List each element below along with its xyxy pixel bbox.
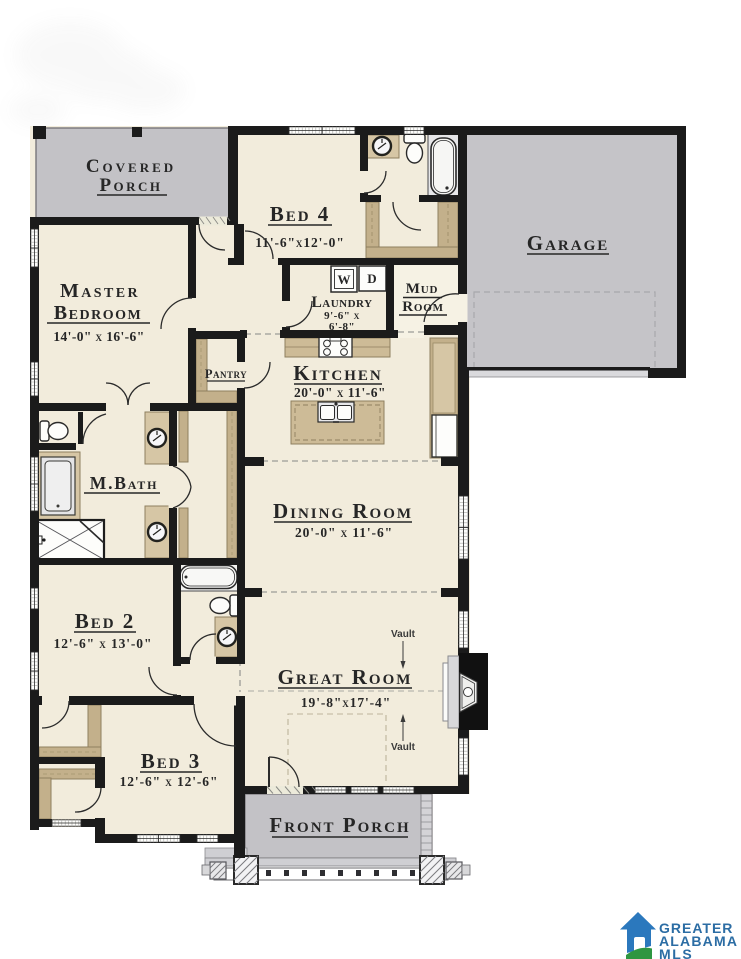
- svg-text:6'-8": 6'-8": [329, 321, 355, 333]
- svg-text:Kitchen: Kitchen: [293, 361, 383, 385]
- svg-text:14'-0" x 16'-6": 14'-0" x 16'-6": [53, 329, 144, 344]
- svg-text:Great Room: Great Room: [278, 665, 413, 689]
- svg-text:M.Bath: M.Bath: [90, 473, 158, 493]
- svg-text:12'-6" x 12'-6": 12'-6" x 12'-6": [120, 774, 219, 789]
- svg-text:Porch: Porch: [99, 175, 162, 196]
- svg-text:19'-8"x17'-4": 19'-8"x17'-4": [301, 695, 391, 710]
- svg-text:Laundry: Laundry: [311, 294, 372, 311]
- svg-text:Bedroom: Bedroom: [54, 302, 142, 324]
- svg-text:Master: Master: [60, 280, 140, 302]
- svg-text:MLS: MLS: [659, 946, 693, 959]
- svg-text:W: W: [338, 272, 351, 287]
- svg-text:Garage: Garage: [527, 231, 610, 255]
- svg-text:Room: Room: [402, 299, 444, 315]
- svg-text:Pantry: Pantry: [205, 367, 247, 381]
- svg-text:Vault: Vault: [391, 629, 416, 640]
- svg-text:12'-6" x 13'-0": 12'-6" x 13'-0": [54, 636, 153, 651]
- svg-text:20'-0" x 11'-6": 20'-0" x 11'-6": [294, 385, 386, 400]
- svg-text:11'-6"x12'-0": 11'-6"x12'-0": [255, 235, 344, 250]
- svg-text:Mud: Mud: [406, 281, 438, 297]
- svg-text:Bed 3: Bed 3: [141, 749, 202, 773]
- svg-text:Dining Room: Dining Room: [273, 499, 413, 523]
- svg-text:Vault: Vault: [391, 742, 416, 753]
- svg-text:20'-0" x 11'-6": 20'-0" x 11'-6": [295, 525, 393, 540]
- svg-text:Bed 2: Bed 2: [75, 609, 136, 633]
- svg-text:Front Porch: Front Porch: [269, 813, 410, 837]
- svg-text:D: D: [367, 271, 376, 286]
- svg-text:Covered: Covered: [86, 156, 176, 177]
- svg-text:Bed 4: Bed 4: [270, 202, 331, 226]
